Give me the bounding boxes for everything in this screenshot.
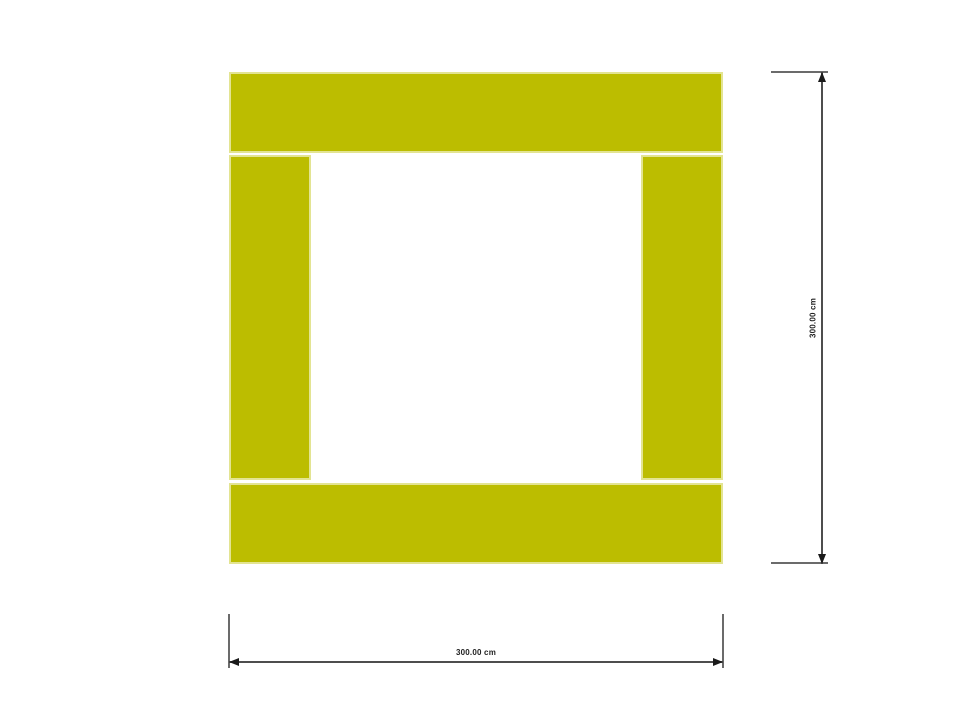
dim-arrow-right-icon — [713, 658, 723, 666]
horizontal-dimension-label: 300.00 cm — [229, 648, 723, 657]
dimension-line-horizontal — [229, 661, 723, 663]
wall-bottom[interactable] — [229, 483, 723, 564]
wall-right[interactable] — [641, 155, 723, 480]
plan-canvas: 300.00 cm 300.00 cm — [0, 0, 960, 720]
dim-arrow-down-icon — [818, 554, 826, 564]
wall-top[interactable] — [229, 72, 723, 153]
dimension-line-vertical — [821, 72, 823, 564]
wall-left[interactable] — [229, 155, 311, 480]
dim-arrow-left-icon — [229, 658, 239, 666]
vertical-dimension-label: 300.00 cm — [809, 298, 818, 338]
dim-arrow-up-icon — [818, 72, 826, 82]
